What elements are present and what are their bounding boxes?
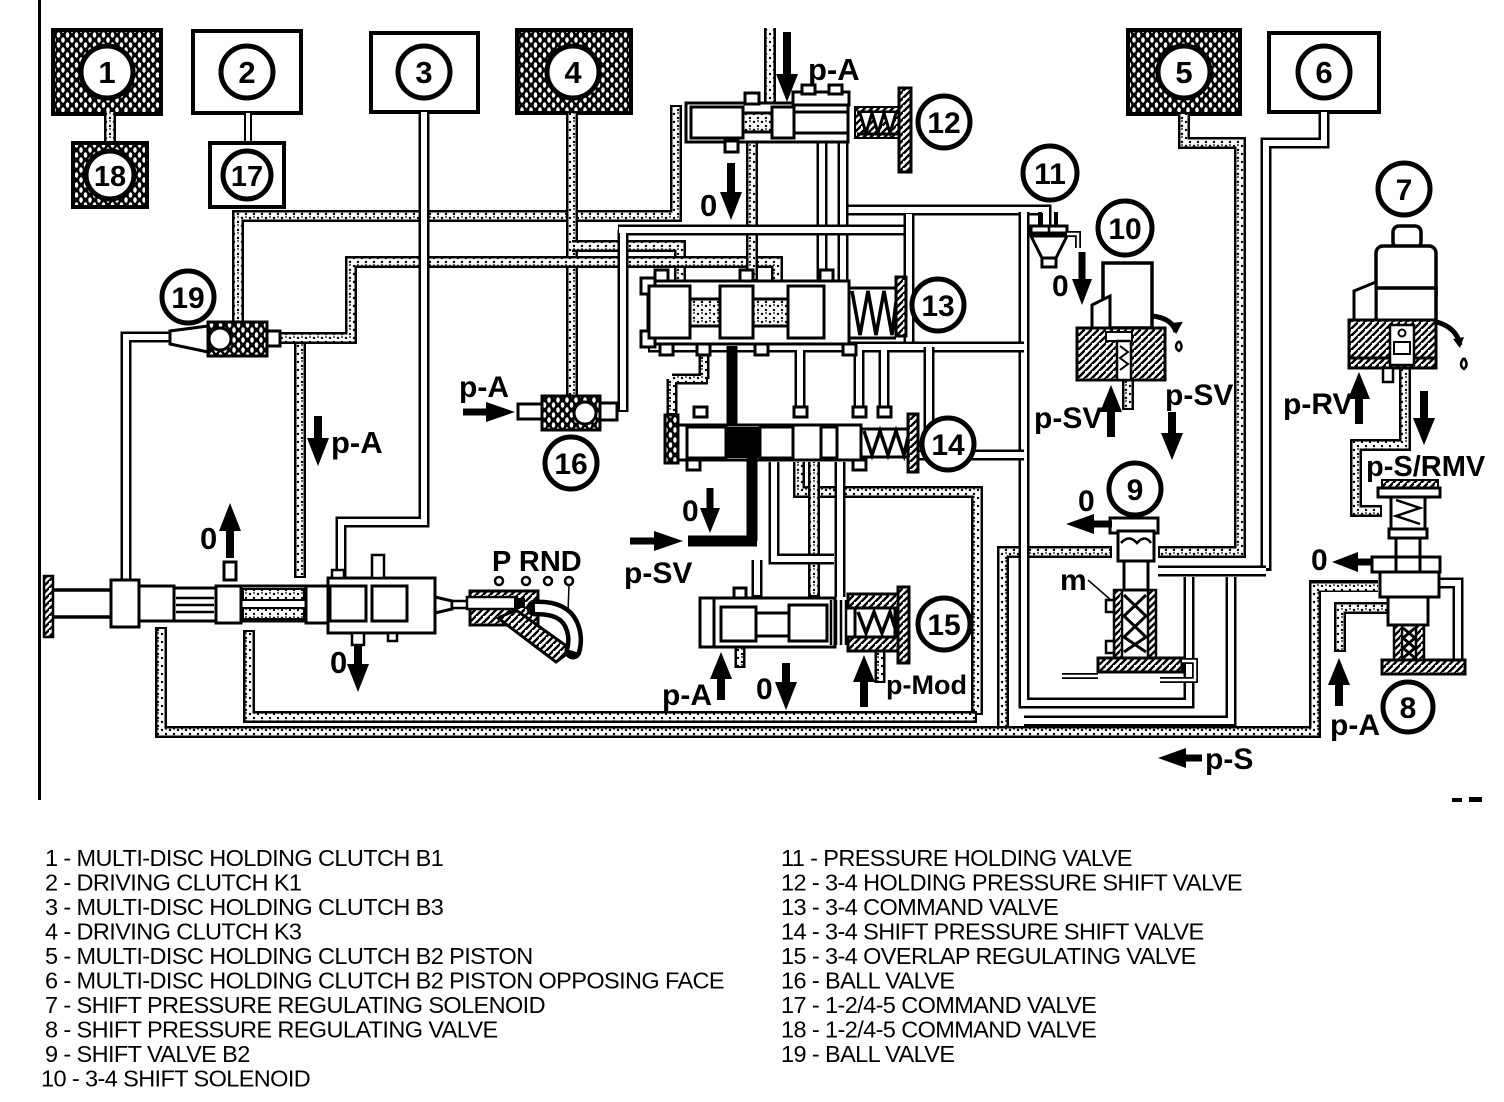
svg-text:10: 10 bbox=[1108, 213, 1141, 246]
svg-text:11 - PRESSURE HOLDING VALVE: 11 - PRESSURE HOLDING VALVE bbox=[781, 845, 1132, 871]
svg-text:p-Mod: p-Mod bbox=[886, 670, 967, 700]
svg-text:19: 19 bbox=[171, 282, 204, 315]
svg-text:2: 2 bbox=[238, 55, 255, 90]
svg-text:p-SV: p-SV bbox=[1034, 402, 1102, 435]
svg-text:17 - 1-2/4-5 COMMAND VALVE: 17 - 1-2/4-5 COMMAND VALVE bbox=[781, 992, 1096, 1018]
svg-text:10 - 3-4 SHIFT SOLENOID: 10 - 3-4 SHIFT SOLENOID bbox=[41, 1066, 310, 1092]
svg-text:3 - MULTI-DISC HOLDING CLUTCH: 3 - MULTI-DISC HOLDING CLUTCH B3 bbox=[45, 894, 444, 920]
svg-text:0: 0 bbox=[330, 645, 347, 680]
svg-text:18: 18 bbox=[94, 161, 126, 193]
svg-text:0: 0 bbox=[700, 188, 717, 223]
svg-text:0: 0 bbox=[1052, 270, 1069, 303]
svg-text:p-A: p-A bbox=[662, 679, 712, 712]
svg-text:2 - DRIVING CLUTCH K1: 2 - DRIVING CLUTCH K1 bbox=[45, 870, 301, 896]
svg-text:11: 11 bbox=[1034, 158, 1066, 191]
svg-text:15: 15 bbox=[927, 609, 960, 642]
svg-text:13 - 3-4 COMMAND VALVE: 13 - 3-4 COMMAND VALVE bbox=[781, 894, 1058, 920]
svg-text:p-SV: p-SV bbox=[1165, 379, 1233, 412]
svg-text:0: 0 bbox=[682, 495, 699, 528]
svg-text:0: 0 bbox=[1078, 485, 1095, 518]
svg-text:p-RV: p-RV bbox=[1283, 388, 1352, 421]
svg-text:p-S/RMV: p-S/RMV bbox=[1366, 451, 1486, 483]
svg-text:9: 9 bbox=[1127, 474, 1144, 507]
svg-text:m: m bbox=[1060, 564, 1087, 597]
svg-text:1: 1 bbox=[98, 55, 115, 90]
svg-text:5: 5 bbox=[1175, 55, 1192, 90]
svg-text:p-A: p-A bbox=[331, 425, 383, 460]
svg-text:P RND: P RND bbox=[492, 546, 582, 578]
svg-text:p-SV: p-SV bbox=[624, 557, 692, 590]
svg-text:4: 4 bbox=[564, 55, 582, 90]
svg-text:0: 0 bbox=[200, 521, 217, 556]
svg-text:6 - MULTI-DISC HOLDING CLUTCH: 6 - MULTI-DISC HOLDING CLUTCH B2 PISTON … bbox=[45, 968, 724, 994]
svg-text:19 - BALL VALVE: 19 - BALL VALVE bbox=[781, 1041, 954, 1067]
svg-text:p-A: p-A bbox=[808, 52, 860, 87]
svg-text:0: 0 bbox=[1311, 544, 1328, 577]
svg-text:7: 7 bbox=[1396, 174, 1413, 207]
svg-text:3: 3 bbox=[415, 55, 432, 90]
svg-text:16: 16 bbox=[554, 448, 587, 481]
svg-text:8 - SHIFT PRESSURE REGULATING: 8 - SHIFT PRESSURE REGULATING VALVE bbox=[45, 1017, 498, 1043]
svg-text:9 - SHIFT VALVE B2: 9 - SHIFT VALVE B2 bbox=[45, 1041, 250, 1067]
svg-text:14: 14 bbox=[931, 429, 965, 462]
svg-text:12 - 3-4 HOLDING PRESSURE SHIF: 12 - 3-4 HOLDING PRESSURE SHIFT VALVE bbox=[781, 870, 1242, 896]
svg-text:18 - 1-2/4-5 COMMAND VALVE: 18 - 1-2/4-5 COMMAND VALVE bbox=[781, 1017, 1096, 1043]
svg-text:5 - MULTI-DISC HOLDING CLUTCH: 5 - MULTI-DISC HOLDING CLUTCH B2 PISTON bbox=[45, 943, 533, 969]
svg-text:p-S: p-S bbox=[1205, 743, 1253, 776]
svg-text:16 - BALL VALVE: 16 - BALL VALVE bbox=[781, 968, 954, 994]
svg-text:8: 8 bbox=[1400, 692, 1417, 725]
svg-text:12: 12 bbox=[927, 107, 960, 140]
svg-text:p-A: p-A bbox=[459, 371, 509, 404]
svg-text:15 - 3-4 OVERLAP REGULATING VA: 15 - 3-4 OVERLAP REGULATING VALVE bbox=[781, 943, 1196, 969]
svg-text:7 - SHIFT PRESSURE REGULATING: 7 - SHIFT PRESSURE REGULATING SOLENOID bbox=[45, 992, 545, 1018]
svg-text:p-A: p-A bbox=[1330, 709, 1380, 742]
svg-text:1 - MULTI-DISC HOLDING CLUTCH: 1 - MULTI-DISC HOLDING CLUTCH B1 bbox=[45, 845, 443, 871]
svg-text:13: 13 bbox=[921, 290, 954, 323]
svg-text:0: 0 bbox=[756, 673, 773, 706]
svg-text:4 - DRIVING CLUTCH K3: 4 - DRIVING CLUTCH K3 bbox=[45, 919, 302, 945]
svg-text:14 - 3-4 SHIFT PRESSURE SHIFT: 14 - 3-4 SHIFT PRESSURE SHIFT VALVE bbox=[781, 919, 1204, 945]
svg-text:6: 6 bbox=[1315, 55, 1332, 90]
svg-text:17: 17 bbox=[231, 161, 263, 193]
